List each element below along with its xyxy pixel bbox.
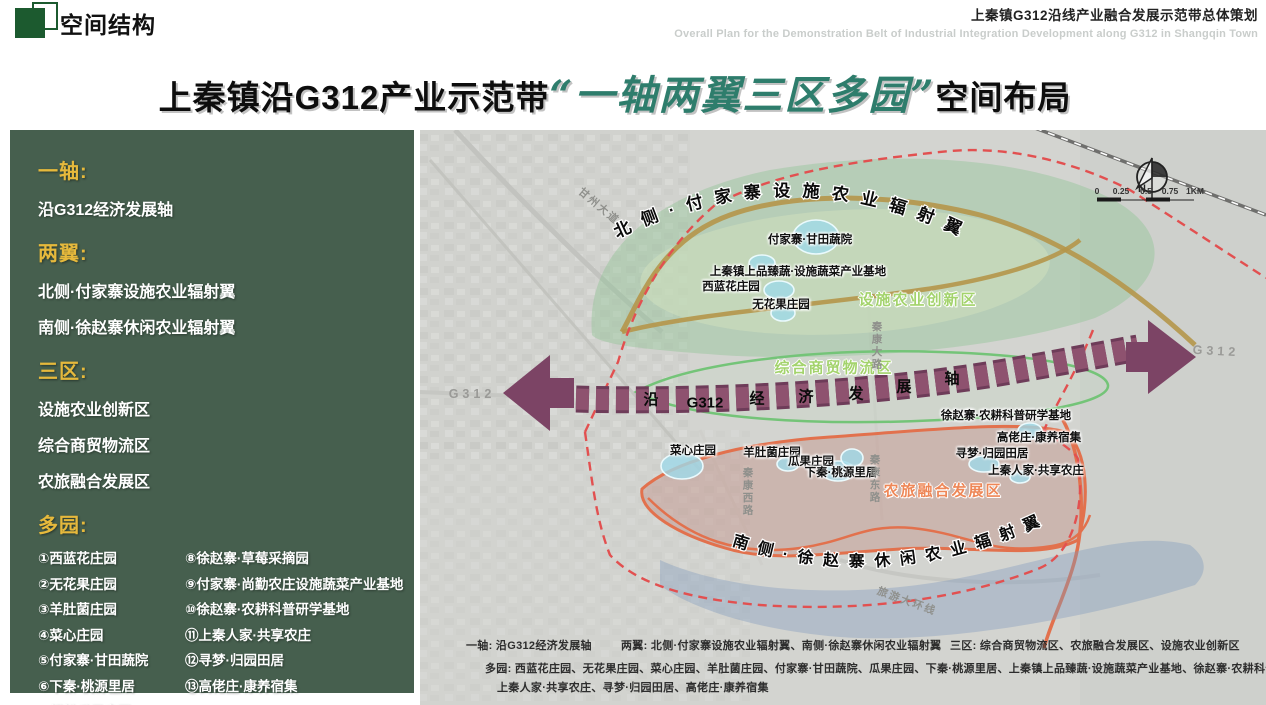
map-label: 上秦镇上品臻蔬·设施蔬菜产业基地 <box>710 263 886 279</box>
axis-char: 沿 <box>643 389 658 410</box>
park-item: ①西蓝花庄园 <box>38 546 185 572</box>
map-label: 徐赵寨·农耕科普研学基地 <box>941 407 1071 423</box>
axis-char: G312 <box>687 395 724 412</box>
page-title-part1: 上秦镇沿G312产业示范带 <box>159 79 550 116</box>
road-label: 秦康东路 <box>868 454 883 504</box>
axis-char: 发 <box>848 383 863 404</box>
sidebar-item: 沿G312经济发展轴 <box>38 196 414 220</box>
legend-row: 两翼: 北侧·付家寨设施农业辐射翼、南侧·徐赵寨休闲农业辐射翼 <box>621 637 941 653</box>
logo-green-square-icon <box>15 8 45 38</box>
header-right: 上秦镇G312沿线产业融合发展示范带总体策划 Overall Plan for … <box>674 4 1258 40</box>
park-item: ④菜心庄园 <box>38 623 185 649</box>
scale-tick: 0.25 <box>1113 186 1130 196</box>
zone-label: 农旅融合发展区 <box>883 480 1002 501</box>
park-columns: ①西蓝花庄园②无花果庄园③羊肚菌庄园④菜心庄园⑤付家寨·甘田蔬院⑥下秦·桃源里居… <box>38 546 414 705</box>
legend-sidebar: 一轴:沿G312经济发展轴两翼:北侧·付家寨设施农业辐射翼南侧·徐赵寨休闲农业辐… <box>10 130 414 693</box>
map-label: 上秦人家·共享农庄 <box>988 462 1084 478</box>
axis-char: 展 <box>896 376 911 397</box>
highway-label: G312 <box>449 387 496 401</box>
sidebar-item: 北侧·付家寨设施农业辐射翼 <box>38 278 414 302</box>
sidebar-section-title-2: 三区: <box>38 355 414 384</box>
park-item: ②无花果庄园 <box>38 572 185 598</box>
axis-char: 轴 <box>944 368 959 389</box>
map-label: 寻梦·归园田居 <box>956 445 1029 461</box>
slide: 空间结构 上秦镇G312沿线产业融合发展示范带总体策划 Overall Plan… <box>0 0 1266 705</box>
map-label: 西蓝花庄园 <box>702 278 760 294</box>
map-label: 下秦·桃源里居 <box>805 464 878 480</box>
map-label: 无花果庄园 <box>752 296 810 312</box>
park-column-right: ⑧徐赵寨·草莓采摘园⑨付家寨·尚勤农庄设施蔬菜产业基地⑩徐赵寨·农耕科普研学基地… <box>185 546 403 705</box>
sidebar-item: 综合商贸物流区 <box>38 432 414 456</box>
zone-label: 设施农业创新区 <box>858 289 977 310</box>
axis-char: 济 <box>798 386 813 407</box>
road-label: 秦康西路 <box>741 467 756 517</box>
scale-tick: 0 <box>1095 186 1100 196</box>
park-column-left: ①西蓝花庄园②无花果庄园③羊肚菌庄园④菜心庄园⑤付家寨·甘田蔬院⑥下秦·桃源里居… <box>38 546 185 705</box>
map-graphics: 北侧·付家寨设施农业辐射翼 南侧·徐赵寨休闲农业辐射翼 <box>420 130 1266 705</box>
park-item: ⑬高佬庄·康养宿集 <box>185 674 403 700</box>
sidebar-item: 农旅融合发展区 <box>38 468 414 492</box>
park-item: ⑪上秦人家·共享农庄 <box>185 623 403 649</box>
park-item: ⑥下秦·桃源里居 <box>38 674 185 700</box>
sidebar-section-title-3: 多园: <box>38 509 414 538</box>
park-item: ⑩徐赵寨·农耕科普研学基地 <box>185 597 403 623</box>
scale-tick: 1KM <box>1186 186 1204 196</box>
scale-bar-segment <box>1097 198 1121 202</box>
map-label: 付家寨·甘田蔬院 <box>768 231 852 247</box>
legend-row: 上秦人家·共享农庄、寻梦·归园田居、高佬庄·康养宿集 <box>497 679 769 695</box>
legend-row: 一轴: 沿G312经济发展轴 <box>466 637 592 653</box>
sidebar-section-title-1: 两翼: <box>38 237 414 266</box>
map-label: 高佬庄·康养宿集 <box>997 429 1081 445</box>
plan-map: 北侧·付家寨设施农业辐射翼 南侧·徐赵寨休闲农业辐射翼 <box>420 130 1266 705</box>
park-item: ③羊肚菌庄园 <box>38 597 185 623</box>
park-item: ⑨付家寨·尚勤农庄设施蔬菜产业基地 <box>185 572 403 598</box>
park-item: ⑫寻梦·归园田居 <box>185 648 403 674</box>
sidebar-section-title-0: 一轴: <box>38 155 414 184</box>
legend-row: 多园: 西蓝花庄园、无花果庄园、菜心庄园、羊肚菌庄园、付家寨·甘田蔬院、瓜果庄园… <box>485 660 1266 676</box>
park-item: ⑦绿松瓜果庄园 <box>38 699 185 705</box>
page-title: 上秦镇沿G312产业示范带“一轴两翼三区多园”空间布局 <box>0 63 1230 121</box>
page-title-part2: 空间布局 <box>935 79 1071 116</box>
sidebar-item: 南侧·徐赵寨休闲农业辐射翼 <box>38 314 414 338</box>
road-label: 秦康大路 <box>870 321 885 371</box>
scale-tick: 0.75 <box>1162 186 1179 196</box>
section-title: 空间结构 <box>60 6 156 40</box>
page-title-highlight: “一轴两翼三区多园” <box>549 72 935 119</box>
scale-tick: 0.5 <box>1140 186 1152 196</box>
highway-label: G312 <box>1192 343 1239 359</box>
map-label: 菜心庄园 <box>670 442 716 458</box>
legend-row: 三区: 综合商贸物流区、农旅融合发展区、设施农业创新区 <box>950 637 1240 653</box>
park-item: ⑤付家寨·甘田蔬院 <box>38 648 185 674</box>
project-title: 上秦镇G312沿线产业融合发展示范带总体策划 <box>674 4 1258 24</box>
project-subtitle-en: Overall Plan for the Demonstration Belt … <box>674 28 1258 40</box>
sidebar-item: 设施农业创新区 <box>38 396 414 420</box>
scale-bar-segment <box>1146 198 1170 202</box>
park-item: ⑧徐赵寨·草莓采摘园 <box>185 546 403 572</box>
axis-char: 经 <box>749 388 764 409</box>
